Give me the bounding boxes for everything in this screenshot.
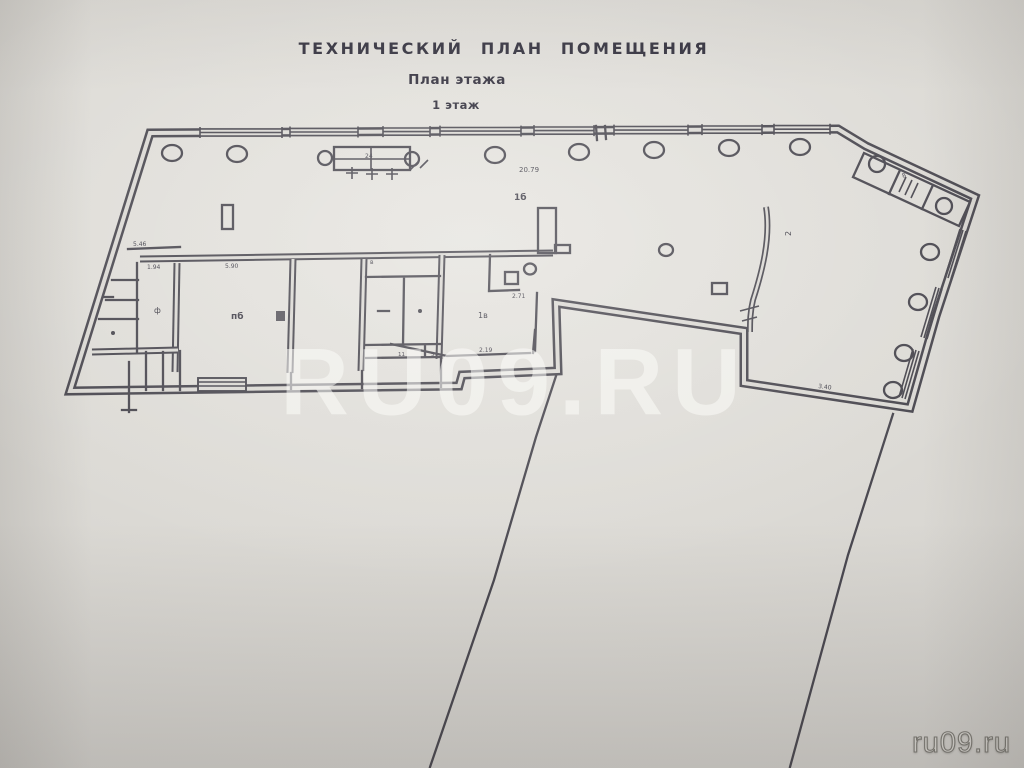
- bottom-wall-window: [198, 378, 246, 391]
- dimension-label: 2.71: [512, 293, 526, 300]
- toilet-bowl: [524, 264, 536, 275]
- entrance-vestibule: [318, 147, 428, 180]
- room-label: в: [370, 259, 374, 266]
- dimension-label: 5.46: [133, 241, 147, 248]
- top-wall-windows: [200, 124, 830, 140]
- watermark-corner: ru09.ru: [912, 727, 1011, 760]
- sink: [505, 272, 518, 284]
- room-label: 2: [784, 231, 793, 236]
- dimension-label: 1.94: [147, 264, 161, 271]
- flue-wall: [740, 207, 767, 332]
- wall-spur: [538, 208, 556, 253]
- room-label: ф: [154, 306, 161, 315]
- dimension-label: 24: [365, 153, 373, 160]
- dimension-label: 5.90: [225, 263, 239, 270]
- room-label: 1в: [478, 311, 488, 320]
- column-marker: [936, 198, 952, 214]
- photographed-document: ТЕХНИЧЕСКИЙ ПЛАН ПОМЕЩЕНИЯ План этажа 1 …: [0, 0, 1024, 768]
- watermark-center: RU09.RU: [280, 329, 750, 438]
- room-label: 1б: [514, 192, 527, 203]
- room-label: пб: [231, 311, 244, 322]
- dimension-label: 20.79: [519, 166, 539, 174]
- duct: [712, 283, 727, 294]
- pillar: [222, 205, 233, 229]
